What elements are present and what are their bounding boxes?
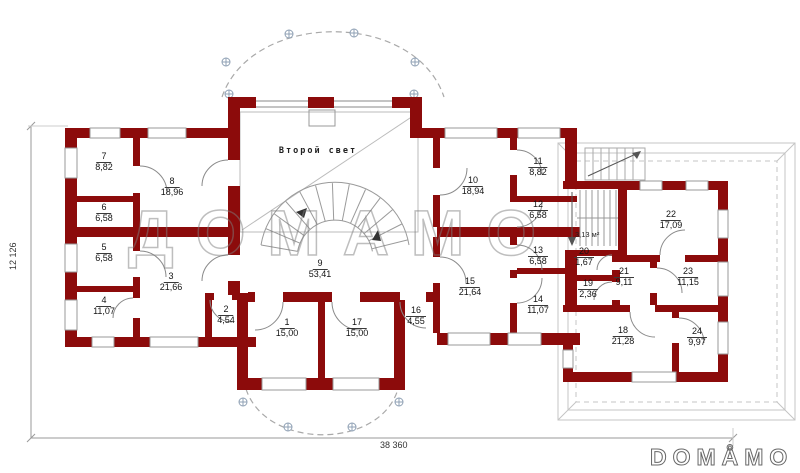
- room-label-20: 201,67: [574, 247, 594, 268]
- stair-area-label: 3,13 м²: [575, 230, 599, 239]
- dimension-left: 12 126: [8, 242, 18, 270]
- second-light-outline: [240, 110, 418, 232]
- second-light-label: Второй свет: [279, 146, 357, 156]
- room-label-21: 219,11: [614, 267, 634, 288]
- dimension-bottom: 38 360: [380, 440, 408, 450]
- room-label-7: 78,82: [95, 152, 113, 173]
- room-label-19: 192,36: [578, 279, 598, 300]
- room-label-10: 1018,94: [462, 176, 485, 197]
- domamo-logo: DOMÅMO: [650, 444, 793, 471]
- room-label-18: 1821,28: [612, 326, 635, 347]
- room-label-8: 818,96: [161, 177, 184, 198]
- room-label-23: 2311,15: [677, 267, 699, 288]
- floor-plan-drawing: [0, 0, 800, 473]
- main-staircase: [261, 182, 409, 251]
- room-label-22: 2217,09: [660, 210, 683, 231]
- room-label-12: 126,58: [528, 200, 548, 221]
- room-label-6: 66,58: [95, 203, 113, 224]
- room-label-14: 1411,07: [527, 295, 549, 316]
- room-label-24: 249,97: [687, 327, 707, 348]
- room-label-15: 1521,64: [459, 277, 482, 298]
- floor-plan: ДОМАМО Второй свет 3,13 м² 38 360 12 126…: [0, 0, 800, 473]
- room-label-5: 56,58: [95, 243, 113, 264]
- room-label-13: 136,58: [528, 246, 548, 267]
- room-label-17: 1715,00: [346, 318, 369, 339]
- room-label-2: 24,54: [217, 305, 235, 326]
- room-label-3: 321,66: [160, 272, 183, 293]
- room-label-16: 164,55: [406, 306, 426, 327]
- room-label-11: 118,82: [528, 157, 547, 178]
- room-label-1: 115,00: [276, 318, 299, 339]
- room-label-9: 953,41: [309, 259, 332, 280]
- room-label-4: 411,07: [93, 296, 115, 317]
